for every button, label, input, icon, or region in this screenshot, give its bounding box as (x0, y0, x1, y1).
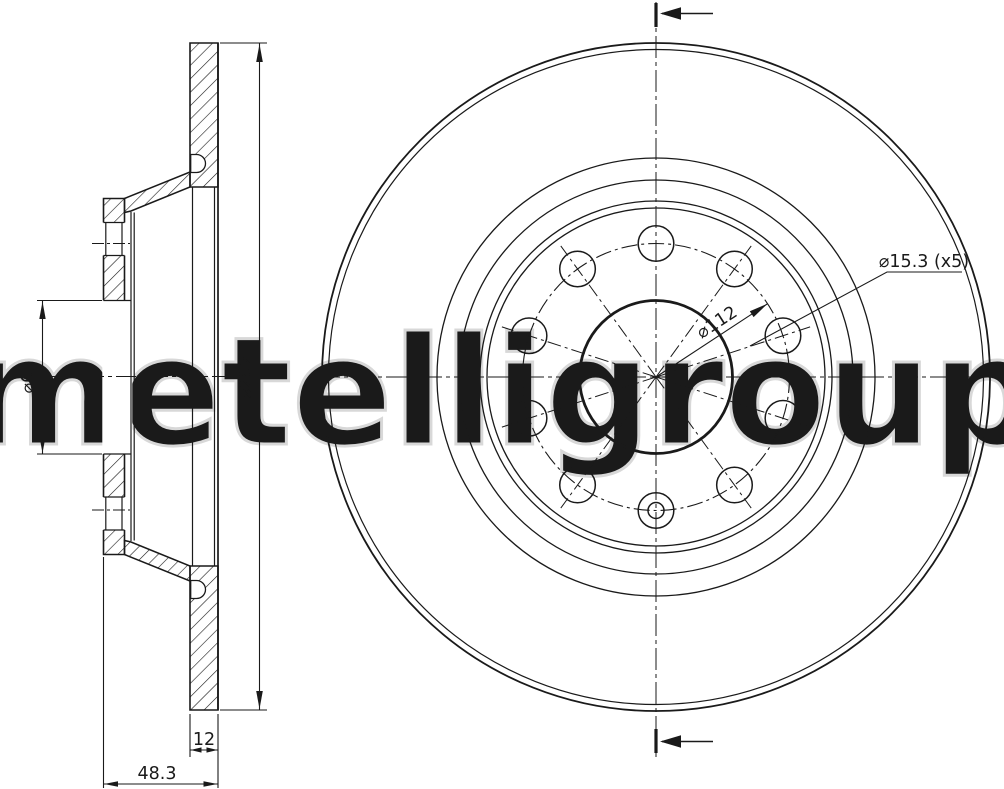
relief-groove-top (191, 155, 206, 173)
thickness-label: 12 (193, 730, 215, 750)
watermark-text: metelligroup (0, 306, 1004, 480)
brake-disc-technical-drawing: metelligroup (0, 0, 1004, 789)
drawing-canvas: metelligroup (0, 0, 1004, 789)
relief-groove-bottom (191, 581, 206, 599)
bore-diameter-label: ⌀65 (19, 361, 39, 394)
outer-diameter-label: ⌀282 (236, 355, 256, 399)
bolt-holes-label: ⌀15.3 (x5) (879, 252, 969, 272)
overall-width-label: 48.3 (138, 764, 177, 784)
centre-bore-gap (102, 301, 132, 455)
